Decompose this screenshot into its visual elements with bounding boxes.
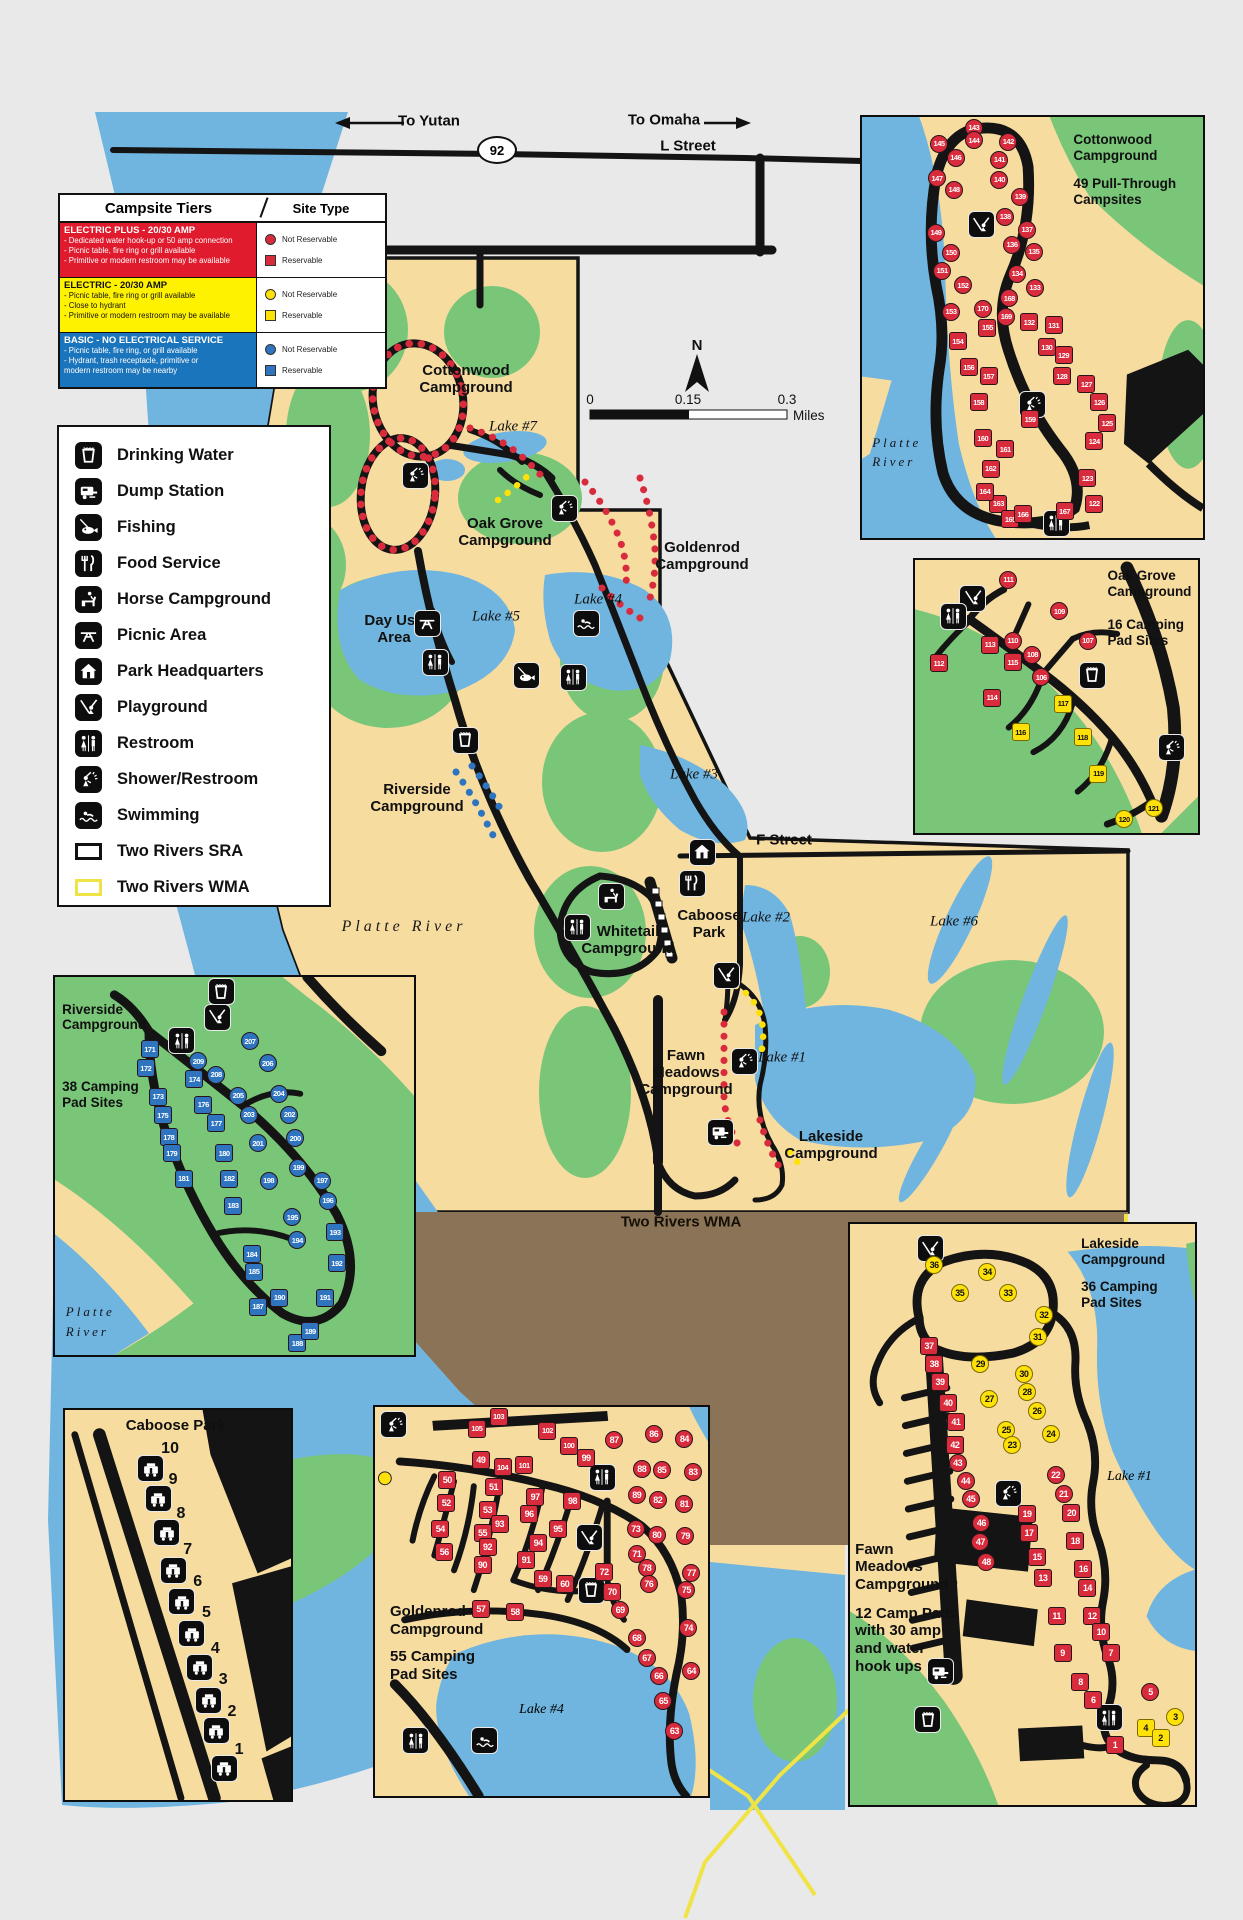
site-marker-132: 132 [1020, 313, 1038, 331]
site-marker-136: 136 [1003, 236, 1021, 254]
site-marker-145: 145 [930, 135, 948, 153]
caboose-site-number: 2 [228, 1703, 237, 1721]
site-marker-94: 94 [529, 1534, 547, 1552]
restroom-icon [565, 915, 590, 940]
legend-item-swim: Swimming [75, 797, 329, 833]
site-marker-10: 10 [1092, 1623, 1110, 1641]
site-marker-87: 87 [605, 1431, 623, 1449]
shower-icon [552, 496, 577, 521]
hq-icon [75, 658, 102, 685]
site-marker-151: 151 [933, 262, 951, 280]
legend-item-horse: Horse Campground [75, 581, 329, 617]
site-marker-167: 167 [1056, 502, 1074, 520]
legend-item-picnic: Picnic Area [75, 617, 329, 653]
site-marker-60: 60 [556, 1575, 574, 1593]
inset-title: Goldenrod Campground [390, 1603, 483, 1638]
site-marker-84: 84 [675, 1430, 693, 1448]
map-label: L Street [660, 138, 716, 155]
site-marker-191: 191 [316, 1289, 334, 1307]
legend-item-playground: Playground [75, 689, 329, 725]
tier-row: ELECTRIC PLUS - 20/30 AMP- Dedicated wat… [60, 223, 385, 278]
site-marker-18: 18 [1066, 1532, 1084, 1550]
caboose-icon [169, 1589, 194, 1614]
site-marker-131: 131 [1045, 316, 1063, 334]
swim-icon [75, 802, 102, 829]
sra-box-icon [75, 843, 102, 860]
map-label: Riverside Campground [370, 782, 463, 816]
svg-text:0.3: 0.3 [778, 392, 797, 407]
shower-icon [732, 1049, 757, 1074]
inset-oak-grove: Oak Grove Campground 16 Camping Pad Site… [913, 558, 1200, 835]
legend-item-wma-box: Two Rivers WMA [75, 869, 329, 905]
site-marker-69: 69 [611, 1601, 629, 1619]
site-marker-101: 101 [515, 1456, 533, 1474]
site-marker-172: 172 [137, 1059, 155, 1077]
site-marker-155: 155 [978, 319, 996, 337]
lake4-label: Lake #4 [519, 1702, 564, 1718]
caboose-site-number: 9 [169, 1471, 178, 1489]
svg-text:Miles: Miles [793, 408, 825, 423]
picnic-icon [75, 622, 102, 649]
inset-title: Oak Grove Campground [1107, 568, 1191, 600]
site-marker-117: 117 [1054, 695, 1072, 713]
shower-icon [403, 463, 428, 488]
site-marker-177: 177 [207, 1114, 225, 1132]
site-marker-28: 28 [1018, 1383, 1036, 1401]
site-marker-26: 26 [1028, 1402, 1046, 1420]
map-label: Lake #4 [574, 592, 622, 609]
legend-item-sra-box: Two Rivers SRA [75, 833, 329, 869]
site-marker-38: 38 [925, 1355, 943, 1373]
site-marker-76: 76 [640, 1575, 658, 1593]
caboose-site-number: 1 [235, 1741, 244, 1759]
site-marker-93: 93 [491, 1515, 509, 1533]
site-marker-58: 58 [506, 1603, 524, 1621]
map-label: Cottonwood Campground [419, 363, 512, 397]
site-marker-13: 13 [1034, 1569, 1052, 1587]
site-type-title: Site Type [257, 201, 385, 216]
legend-item-dump: Dump Station [75, 473, 329, 509]
site-marker-51: 51 [485, 1478, 503, 1496]
site-marker-20: 20 [1062, 1504, 1080, 1522]
site-marker-123: 123 [1078, 469, 1096, 487]
site-marker-90: 90 [474, 1556, 492, 1574]
site-marker-41: 41 [947, 1413, 965, 1431]
site-marker-11: 11 [1048, 1607, 1066, 1625]
site-marker-22: 22 [1047, 1466, 1065, 1484]
site-marker-181: 181 [175, 1170, 193, 1188]
site-marker-185: 185 [245, 1263, 263, 1281]
site-marker-134: 134 [1008, 265, 1026, 283]
site-marker-32: 32 [1035, 1306, 1053, 1324]
map-label: To Omaha [628, 112, 700, 129]
site-marker-99: 99 [577, 1449, 595, 1467]
site-marker-182: 182 [220, 1170, 238, 1188]
restroom-icon [75, 730, 102, 757]
inset-goldenrod: Goldenrod Campground 55 Camping Pad Site… [373, 1405, 710, 1798]
caboose-icon [146, 1486, 171, 1511]
inset-title: Riverside Campground [62, 1002, 146, 1034]
site-marker-3: 3 [1166, 1708, 1184, 1726]
caboose-icon [154, 1520, 179, 1545]
site-marker-147: 147 [928, 169, 946, 187]
svg-text:0.15: 0.15 [675, 392, 701, 407]
restroom-icon [561, 665, 586, 690]
map-label: Lakeside Campground [784, 1129, 877, 1163]
site-marker-7: 7 [1102, 1644, 1120, 1662]
legend-item-fishing: Fishing [75, 509, 329, 545]
water-icon [579, 1578, 604, 1603]
site-marker-125: 125 [1098, 414, 1116, 432]
highway-92-shield: 92 [477, 136, 517, 164]
site-marker-63: 63 [665, 1722, 683, 1740]
playground-icon [714, 963, 739, 988]
site-marker-21: 21 [1055, 1485, 1073, 1503]
site-marker-52: 52 [437, 1494, 455, 1512]
map-label: Lake #3 [670, 767, 718, 784]
site-marker-180: 180 [215, 1144, 233, 1162]
site-marker-192: 192 [328, 1254, 346, 1272]
map-label: Caboose Park [677, 908, 740, 942]
site-marker-68: 68 [628, 1629, 646, 1647]
site-marker-8: 8 [1071, 1673, 1089, 1691]
site-marker-67: 67 [638, 1649, 656, 1667]
water-icon [209, 979, 234, 1004]
site-marker-196: 196 [319, 1192, 337, 1210]
site-marker-35: 35 [951, 1284, 969, 1302]
site-marker-138: 138 [996, 208, 1014, 226]
site-marker-202: 202 [280, 1106, 298, 1124]
site-marker-121: 121 [1145, 799, 1163, 817]
site-marker-153: 153 [942, 303, 960, 321]
lake1-label: Lake #1 [1107, 1469, 1152, 1485]
site-marker-175: 175 [154, 1106, 172, 1124]
food-icon [75, 550, 102, 577]
tier-row: ELECTRIC - 20/30 AMP- Picnic table, fire… [60, 278, 385, 333]
site-marker-15: 15 [1028, 1548, 1046, 1566]
site-marker-42: 42 [946, 1436, 964, 1454]
site-marker-115: 115 [1004, 653, 1022, 671]
dump-icon [75, 478, 102, 505]
site-marker-204: 204 [270, 1085, 288, 1103]
site-marker-79: 79 [676, 1527, 694, 1545]
inset-subtitle: 49 Pull-Through Campsites [1073, 176, 1176, 208]
site-marker-157: 157 [980, 367, 998, 385]
svg-text:N: N [692, 337, 703, 354]
site-marker-82: 82 [649, 1491, 667, 1509]
site-marker-162: 162 [982, 460, 1000, 478]
campsite-tiers-legend: Campsite Tiers Site Type ELECTRIC PLUS -… [58, 193, 387, 389]
tiers-title: Campsite Tiers [60, 200, 257, 217]
site-marker-205: 205 [229, 1087, 247, 1105]
site-marker-16: 16 [1074, 1560, 1092, 1578]
svg-text:0: 0 [586, 392, 594, 407]
site-marker-100: 100 [560, 1437, 578, 1455]
caboose-site-number: 3 [219, 1671, 228, 1689]
site-marker-174: 174 [185, 1070, 203, 1088]
water-icon [915, 1707, 940, 1732]
caboose-icon [204, 1718, 229, 1743]
site-marker-57: 57 [472, 1600, 490, 1618]
site-marker-156: 156 [960, 358, 978, 376]
fishing-icon [514, 663, 539, 688]
site-marker-190: 190 [270, 1289, 288, 1307]
food-icon [680, 871, 705, 896]
map-label: Lake #5 [472, 609, 520, 626]
site-marker-104: 104 [494, 1458, 512, 1476]
site-marker-50: 50 [438, 1471, 456, 1489]
restroom-icon [941, 604, 966, 629]
inset-subtitle: 36 Camping Pad Sites [1081, 1279, 1158, 1311]
site-marker-72: 72 [595, 1563, 613, 1581]
restroom-icon [590, 1465, 615, 1490]
legend-item-food: Food Service [75, 545, 329, 581]
inset-caboose-park: Caboose Park 10987654321 [63, 1408, 293, 1802]
site-marker-154: 154 [949, 332, 967, 350]
shower-icon [996, 1481, 1021, 1506]
site-marker-176: 176 [194, 1096, 212, 1114]
site-marker-146: 146 [947, 149, 965, 167]
site-marker-48: 48 [977, 1553, 995, 1571]
site-marker-1: 1 [1106, 1736, 1124, 1754]
map-label: Lake #1 [758, 1050, 806, 1067]
site-marker-113: 113 [981, 636, 999, 654]
site-marker-17: 17 [1020, 1524, 1038, 1542]
picnic-icon [415, 611, 440, 636]
site-marker-74: 74 [679, 1619, 697, 1637]
fawn-meadows-title: Fawn Meadows Campground [855, 1541, 948, 1594]
playground-icon [969, 212, 994, 237]
site-marker-36: 36 [925, 1256, 943, 1274]
restroom-icon [1097, 1705, 1122, 1730]
caboose-site-number: 5 [202, 1604, 211, 1622]
site-marker-30: 30 [1015, 1365, 1033, 1383]
site-marker-98: 98 [563, 1492, 581, 1510]
map-label: Goldenrod Campground [655, 540, 748, 574]
site-marker-118: 118 [1074, 728, 1092, 746]
site-marker-31: 31 [1029, 1328, 1047, 1346]
site-marker-40: 40 [939, 1394, 957, 1412]
site-marker-54: 54 [431, 1520, 449, 1538]
site-marker-164: 164 [976, 483, 994, 501]
site-marker-144: 144 [965, 131, 983, 149]
restroom-icon [423, 650, 448, 675]
site-marker-135: 135 [1025, 243, 1043, 261]
site-marker-103: 103 [490, 1408, 508, 1426]
map-label: Fawn Meadows Campground [639, 1048, 732, 1098]
water-icon [75, 442, 102, 469]
site-marker-137: 137 [1018, 221, 1036, 239]
playground-icon [75, 694, 102, 721]
site-marker-73: 73 [627, 1520, 645, 1538]
site-marker-122: 122 [1085, 495, 1103, 513]
site-marker-24: 24 [1042, 1425, 1060, 1443]
caboose-icon [196, 1688, 221, 1713]
site-marker-129: 129 [1055, 346, 1073, 364]
vegetation-east [753, 1638, 837, 1762]
platte-river-label: Platte River [66, 1302, 115, 1341]
platte-river-label: Platte River [872, 433, 921, 472]
inset-riverside: Riverside Campground 38 Camping Pad Site… [53, 975, 416, 1357]
map-label: Two Rivers WMA [621, 1214, 742, 1231]
site-marker-148: 148 [945, 181, 963, 199]
site-marker-158: 158 [970, 393, 988, 411]
swim-icon [472, 1728, 497, 1753]
horse-icon [75, 586, 102, 613]
site-marker-169: 169 [997, 308, 1015, 326]
site-marker-160: 160 [974, 429, 992, 447]
site-marker-183: 183 [224, 1197, 242, 1215]
water-icon [1080, 663, 1105, 688]
site-marker-6: 6 [1084, 1691, 1102, 1709]
map-label: Lake #7 [489, 419, 537, 436]
site-marker-89: 89 [628, 1486, 646, 1504]
site-marker-119: 119 [1089, 765, 1107, 783]
site-marker-126: 126 [1090, 393, 1108, 411]
legend-item-restroom: Restroom [75, 725, 329, 761]
site-marker-19: 19 [1018, 1505, 1036, 1523]
site-marker-37: 37 [920, 1337, 938, 1355]
caboose-site-number: 7 [183, 1541, 192, 1559]
site-marker-85: 85 [653, 1461, 671, 1479]
site-marker-111: 111 [999, 571, 1017, 589]
park-map: N 0 0.15 0.3 Miles 92 To YutanTo OmahaL … [0, 0, 1243, 1920]
site-marker-187: 187 [249, 1298, 267, 1316]
site-marker-91: 91 [517, 1551, 535, 1569]
site-marker-96: 96 [520, 1505, 538, 1523]
inset-subtitle: 38 Camping Pad Sites [62, 1079, 139, 1111]
caboose-site-number: 8 [176, 1505, 185, 1523]
playground-icon [577, 1525, 602, 1550]
inset-title: Lakeside Campground [1081, 1236, 1165, 1268]
site-marker-14: 14 [1078, 1579, 1096, 1597]
site-marker-92: 92 [479, 1538, 497, 1556]
site-marker-128: 128 [1053, 367, 1071, 385]
wma-box-icon [75, 879, 102, 896]
swim-icon [574, 611, 599, 636]
site-marker-44: 44 [957, 1472, 975, 1490]
water-icon [453, 728, 478, 753]
site-marker-43: 43 [949, 1454, 967, 1472]
legend-item-hq: Park Headquarters [75, 653, 329, 689]
legend-item-water: Drinking Water [75, 437, 329, 473]
site-marker-49: 49 [472, 1451, 490, 1469]
legend-item-shower: Shower/Restroom [75, 761, 329, 797]
site-marker-206: 206 [259, 1054, 277, 1072]
site-marker-184: 184 [243, 1245, 261, 1263]
shower-icon [1159, 735, 1184, 760]
dump-icon [708, 1120, 733, 1145]
inset-lakeside: Lakeside Campground 36 Camping Pad Sites… [848, 1222, 1197, 1807]
site-marker-66: 66 [650, 1667, 668, 1685]
site-marker-193: 193 [326, 1223, 344, 1241]
site-marker-170: 170 [974, 300, 992, 318]
site-marker-107: 107 [1079, 632, 1097, 650]
site-marker-124: 124 [1085, 432, 1103, 450]
caboose-icon [187, 1655, 212, 1680]
site-marker-2: 2 [1152, 1729, 1170, 1747]
caboose-site-number: 4 [211, 1640, 220, 1658]
site-marker-110: 110 [1004, 632, 1022, 650]
inset-subtitle: 16 Camping Pad Sites [1107, 617, 1184, 649]
site-marker-130: 130 [1038, 338, 1056, 356]
site-marker-112: 112 [930, 654, 948, 672]
site-marker-198: 198 [260, 1172, 278, 1190]
playground-icon [205, 1005, 230, 1030]
inset-title: Caboose Park [101, 1417, 250, 1435]
site-marker-114: 114 [983, 689, 1001, 707]
site-marker-159: 159 [1021, 410, 1039, 428]
shower-icon [75, 766, 102, 793]
site-marker-88: 88 [633, 1460, 651, 1478]
caboose-site-number: 10 [161, 1440, 179, 1458]
shower-icon [381, 1412, 406, 1437]
site-marker-133: 133 [1026, 279, 1044, 297]
caboose-icon [138, 1456, 163, 1481]
tier-row: BASIC - NO ELECTRICAL SERVICE- Picnic ta… [60, 333, 385, 387]
map-label: Lake #2 [742, 910, 790, 927]
site-marker-70: 70 [603, 1583, 621, 1601]
map-label: F Street [756, 832, 812, 849]
dump-icon [928, 1659, 953, 1684]
site-marker-9: 9 [1054, 1644, 1072, 1662]
site-marker-127: 127 [1077, 375, 1095, 393]
horse-icon [599, 884, 624, 909]
site-marker-149: 149 [927, 224, 945, 242]
site-marker-173: 173 [149, 1088, 167, 1106]
site-marker-142: 142 [999, 133, 1017, 151]
caboose-site-number: 6 [193, 1573, 202, 1591]
map-label: Lake #6 [930, 914, 978, 931]
inset-subtitle: 55 Camping Pad Sites [390, 1648, 475, 1683]
site-marker-56: 56 [435, 1543, 453, 1561]
site-marker-39: 39 [931, 1373, 949, 1391]
site-marker-33: 33 [999, 1284, 1017, 1302]
site-marker-203: 203 [240, 1106, 258, 1124]
site-marker-179: 179 [163, 1144, 181, 1162]
caboose-icon [179, 1621, 204, 1646]
restroom-icon [403, 1728, 428, 1753]
hq-icon [690, 840, 715, 865]
site-marker-95: 95 [549, 1520, 567, 1538]
map-label: Platte River [342, 918, 467, 936]
site-marker-166: 166 [1014, 505, 1032, 523]
site-marker-150: 150 [942, 244, 960, 262]
site-marker-86: 86 [645, 1425, 663, 1443]
caboose-icon [212, 1756, 237, 1781]
site-marker-97: 97 [526, 1488, 544, 1506]
site-marker-34: 34 [978, 1263, 996, 1281]
inset-title: Cottonwood Campground [1073, 132, 1157, 164]
site-marker-116: 116 [1012, 723, 1030, 741]
site-marker-161: 161 [996, 440, 1014, 458]
site-marker-59: 59 [534, 1570, 552, 1588]
map-label: Whitetail Campground [581, 924, 674, 958]
map-label: To Yutan [398, 113, 460, 130]
site-marker-171: 171 [141, 1040, 159, 1058]
site-marker-105: 105 [468, 1420, 486, 1438]
site-marker-197: 197 [313, 1172, 331, 1190]
map-label: Oak Grove Campground [458, 516, 551, 550]
site-marker-189: 189 [301, 1322, 319, 1340]
facility-legend: Drinking WaterDump StationFishingFood Se… [57, 425, 331, 907]
restroom-icon [169, 1028, 194, 1053]
site-marker-208: 208 [207, 1066, 225, 1084]
fishing-icon [75, 514, 102, 541]
caboose-icon [161, 1558, 186, 1583]
site-marker-80: 80 [648, 1526, 666, 1544]
site-marker-102: 102 [538, 1422, 556, 1440]
